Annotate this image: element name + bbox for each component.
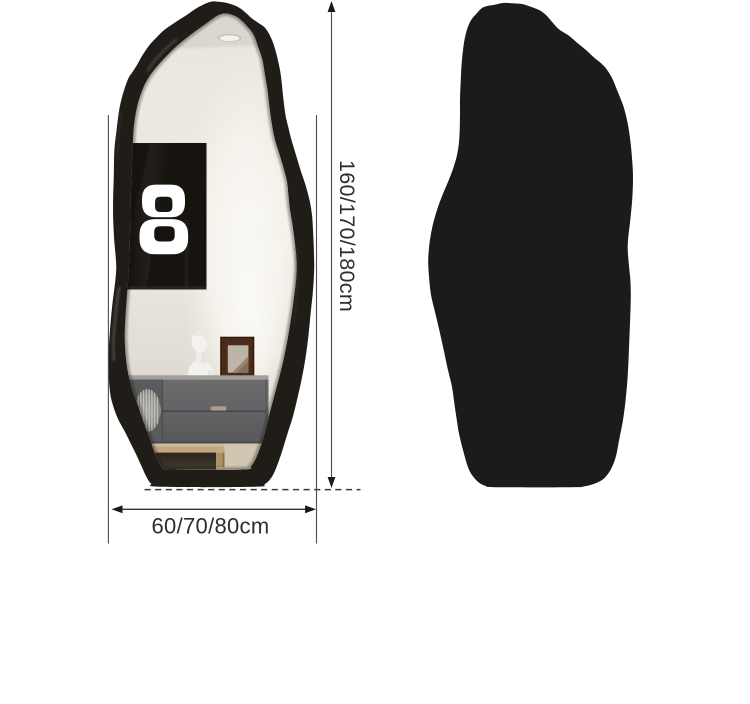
svg-text:60/70/80cm: 60/70/80cm — [152, 514, 270, 539]
svg-text:160/170/180cm: 160/170/180cm — [335, 160, 359, 312]
